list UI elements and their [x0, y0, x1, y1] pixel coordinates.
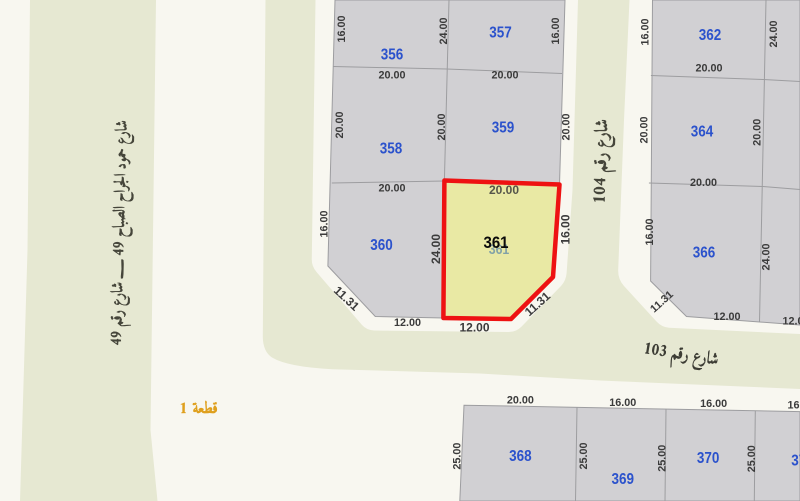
svg-text:364: 364: [691, 124, 714, 141]
svg-text:360: 360: [370, 237, 393, 254]
svg-text:25.00: 25.00: [746, 445, 758, 472]
svg-text:16.00: 16.00: [336, 15, 348, 42]
svg-text:20.00: 20.00: [690, 177, 717, 189]
svg-text:362: 362: [699, 27, 722, 44]
svg-text:20.00: 20.00: [507, 394, 534, 406]
svg-text:20.00: 20.00: [639, 116, 651, 143]
svg-text:24.00: 24.00: [768, 20, 780, 47]
svg-text:16.00: 16.00: [550, 17, 562, 44]
svg-text:25.00: 25.00: [578, 442, 590, 469]
svg-text:366: 366: [693, 245, 716, 262]
svg-text:361: 361: [484, 234, 509, 252]
svg-text:16.00: 16.00: [644, 218, 656, 245]
svg-text:12.00: 12.00: [782, 316, 800, 328]
svg-text:20.00: 20.00: [695, 63, 722, 75]
svg-text:20.00: 20.00: [378, 70, 405, 82]
svg-text:16.00: 16.00: [700, 398, 727, 410]
svg-text:16.00: 16.00: [559, 214, 573, 244]
svg-text:20.00: 20.00: [436, 113, 448, 140]
svg-text:20.00: 20.00: [334, 111, 346, 138]
svg-text:357: 357: [489, 25, 512, 42]
svg-text:20.00: 20.00: [561, 113, 573, 140]
svg-text:16.00: 16.00: [609, 397, 636, 409]
svg-text:20.00: 20.00: [752, 119, 764, 146]
svg-text:24.00: 24.00: [438, 17, 450, 44]
svg-text:368: 368: [509, 448, 532, 465]
svg-text:16.00: 16.00: [640, 18, 652, 45]
svg-text:12.00: 12.00: [713, 311, 740, 323]
svg-text:25.00: 25.00: [657, 445, 669, 472]
svg-text:12.00: 12.00: [459, 321, 489, 335]
svg-text:358: 358: [380, 141, 403, 158]
svg-text:12.00: 12.00: [394, 317, 421, 329]
svg-text:20.00: 20.00: [378, 183, 405, 195]
svg-text:25.00: 25.00: [451, 443, 463, 470]
svg-text:20.00: 20.00: [491, 70, 518, 82]
svg-text:20.00: 20.00: [489, 183, 519, 197]
svg-text:16.00: 16.00: [319, 210, 331, 237]
svg-text:16.00: 16.00: [787, 400, 800, 412]
svg-text:356: 356: [381, 47, 404, 64]
svg-text:24.00: 24.00: [761, 243, 773, 270]
svg-text:371: 371: [791, 453, 800, 470]
svg-text:24.00: 24.00: [429, 234, 443, 264]
svg-text:370: 370: [697, 450, 720, 467]
svg-text:359: 359: [492, 120, 515, 137]
svg-text:369: 369: [612, 471, 635, 488]
